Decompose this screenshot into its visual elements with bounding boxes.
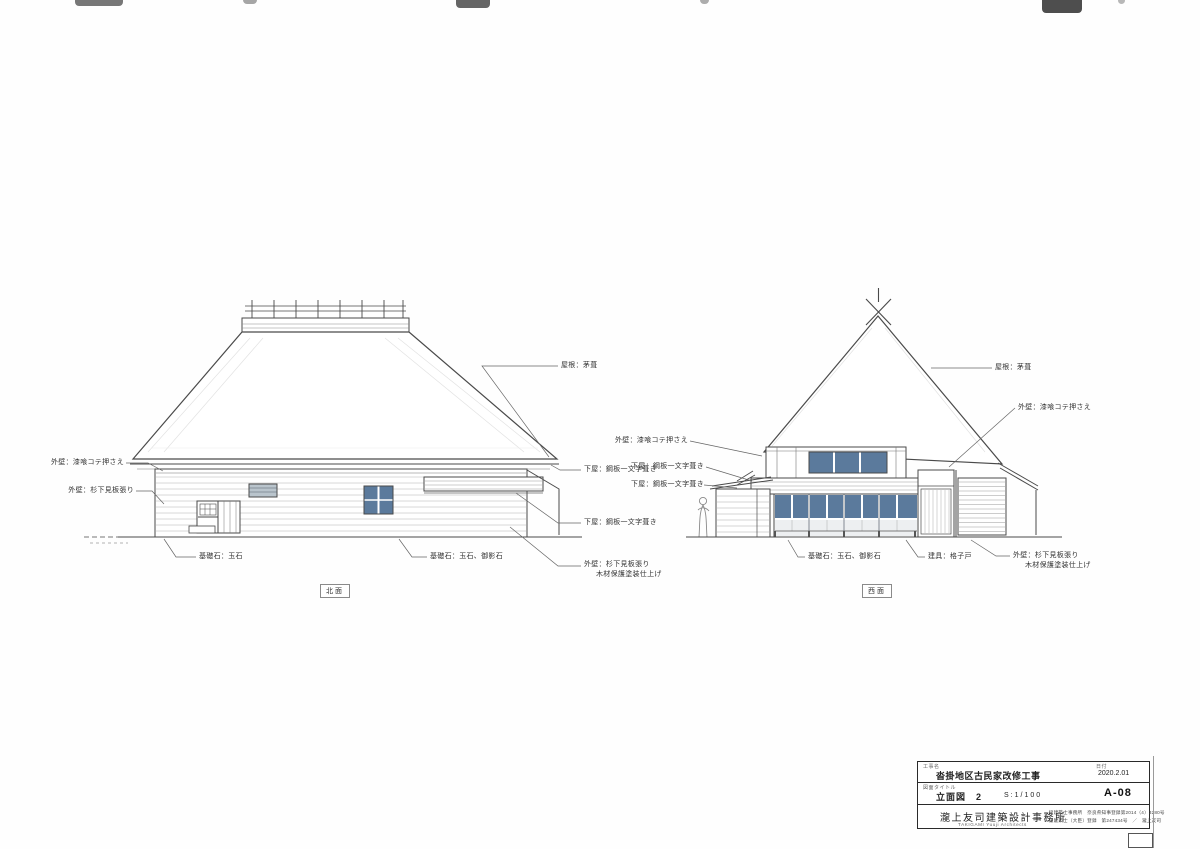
- caption-west-elevation: 西面: [862, 584, 892, 598]
- stamp-box: [1128, 833, 1153, 848]
- small-window: [249, 484, 277, 497]
- label-west-wall-plaster-left: 外壁：漆喰コテ押さえ: [602, 437, 688, 445]
- label-west-pent-roof-2: 下屋：鋼板一文字葺き: [618, 481, 704, 489]
- label-west-pent-roof-1: 下屋：鋼板一文字葺き: [618, 463, 704, 471]
- label-west-wall-siding-1: 外壁：杉下見板張り: [1013, 552, 1079, 560]
- elevation-linework: [0, 0, 1200, 849]
- entrance-step: [189, 526, 215, 533]
- label-north-roof: 屋根：茅葺: [561, 362, 598, 370]
- label-north-foundation-2: 基礎石：玉石、御影石: [430, 553, 503, 561]
- registration-line-2: 一級建築士（大臣）登録 第247434号 ／ 瀧上友司: [1044, 818, 1161, 824]
- drawing-sheet: 外壁：漆喰コテ押さえ 外壁：杉下見板張り 屋根：茅葺 下屋：鋼板一文字葺き 下屋…: [0, 0, 1200, 849]
- registration-line-1: 一級建築士事務所 奈良県知事登録第2014（4）3280号: [1044, 810, 1165, 816]
- lattice-section: [918, 470, 954, 537]
- title-block: 工事名 沓掛地区古民家改修工事 日付 2020.2.01 図面タイトル 立面図 …: [917, 761, 1150, 829]
- label-north-wall-siding-lower-2: 木材保護塗装仕上げ: [596, 571, 662, 579]
- label-west-wall-plaster-right: 外壁：漆喰コテ押さえ: [1018, 404, 1091, 412]
- west-elevation-drawing: [686, 288, 1062, 537]
- title-block-drawing-row: 図面タイトル 立面図 2 S:1/100 A-08: [918, 783, 1149, 805]
- title-block-project-row: 工事名 沓掛地区古民家改修工事 日付 2020.2.01: [918, 762, 1149, 783]
- thatched-roof: [133, 332, 557, 459]
- label-north-wall-siding: 外壁：杉下見板張り: [46, 487, 134, 495]
- label-west-fitting: 建具：格子戸: [928, 553, 972, 561]
- ridge-cap: [242, 318, 409, 332]
- sheet-number: A-08: [1104, 787, 1132, 799]
- date-value: 2020.2.01: [1098, 770, 1129, 777]
- label-north-pent-roof-2: 下屋：鋼板一文字葺き: [584, 519, 657, 527]
- project-name: 沓掛地区古民家改修工事: [936, 769, 1041, 782]
- ridge-posts: [252, 300, 403, 318]
- clerestory-windows: [809, 452, 887, 473]
- label-north-foundation-1: 基礎石：玉石: [199, 553, 243, 561]
- label-west-roof: 屋根：茅葺: [995, 364, 1032, 372]
- label-north-wall-plaster: 外壁：漆喰コテ押さえ: [38, 459, 124, 467]
- sheet-border-line: [1153, 756, 1154, 848]
- label-west-foundation: 基礎石：玉石、御影石: [808, 553, 881, 561]
- date-label: 日付: [1096, 763, 1107, 770]
- north-elevation-drawing: [84, 300, 582, 543]
- drawing-scale: S:1/100: [1004, 792, 1042, 799]
- title-block-office-row: 瀧上友司建築設計事務所 TAKIGAMI Yuuji Architects 一級…: [918, 805, 1149, 830]
- label-west-wall-siding-2: 木材保護塗装仕上げ: [1025, 562, 1091, 570]
- office-name-english: TAKIGAMI Yuuji Architects: [958, 822, 1027, 827]
- drawing-title: 立面図 2: [936, 790, 982, 803]
- caption-north-elevation: 北面: [320, 584, 350, 598]
- thatched-roof-west: [764, 316, 1002, 464]
- ridge-rails: [245, 306, 406, 311]
- person-figure: [698, 497, 709, 537]
- label-north-wall-siding-lower-1: 外壁：杉下見板張り: [584, 561, 650, 569]
